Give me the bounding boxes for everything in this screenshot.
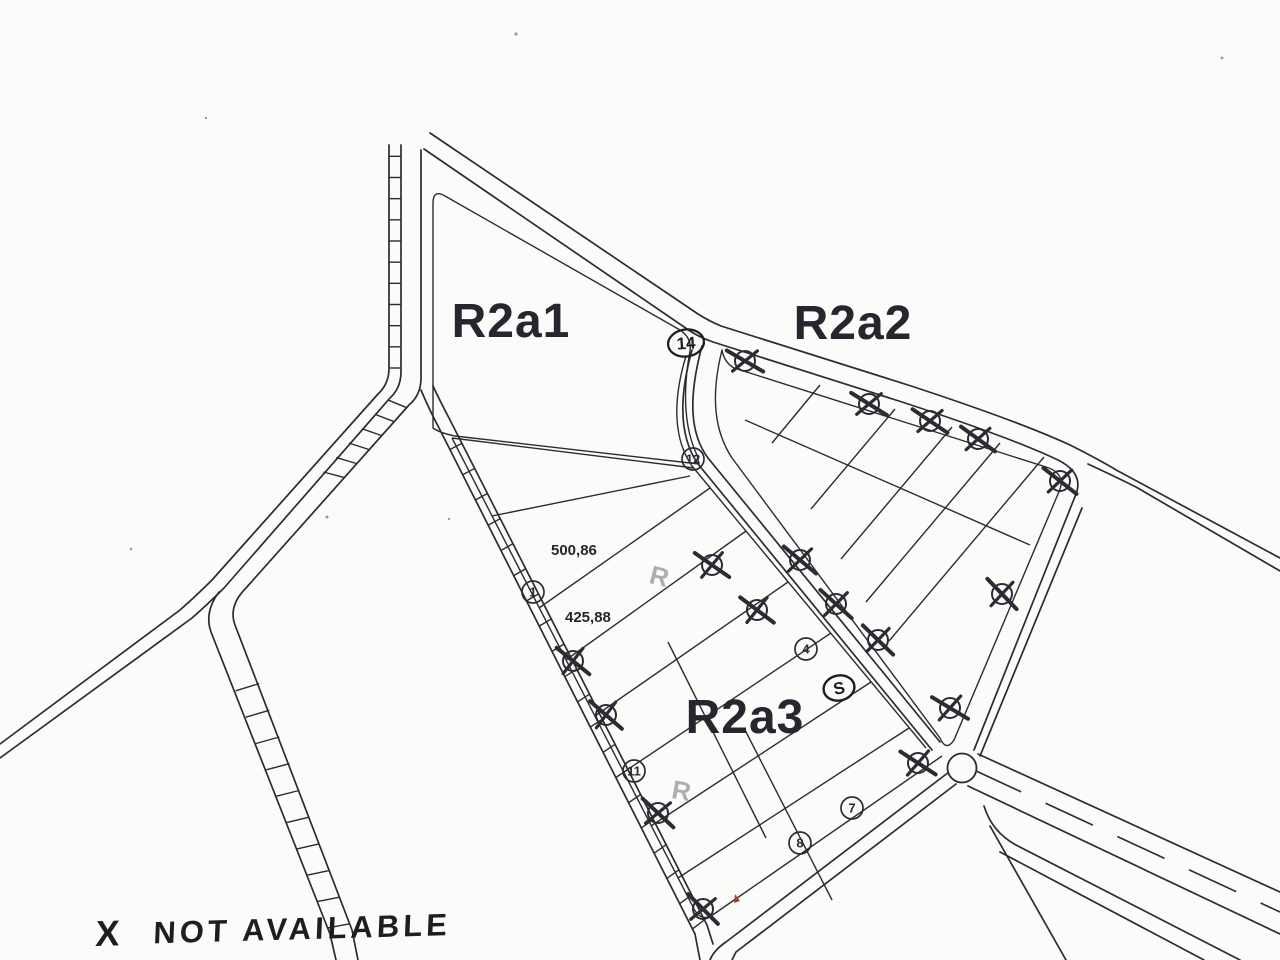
plot-marker-unavailable <box>913 409 948 432</box>
cross-stroke <box>939 696 960 720</box>
cross-stroke <box>908 751 929 775</box>
r2a2-column-line <box>841 427 952 559</box>
west-road-edge-2 <box>0 145 401 758</box>
plot-number-text: 12 <box>686 452 700 467</box>
ladder-rung <box>277 790 300 796</box>
corner-plot-boundary-3 <box>1000 852 1204 960</box>
cross-stroke <box>747 598 767 623</box>
ladder-rung <box>266 764 289 770</box>
plot-marker-unavailable <box>932 696 968 720</box>
cross-stroke <box>702 553 723 578</box>
middle-road-east-edge <box>433 386 713 944</box>
plot-number-text: 4 <box>802 642 810 657</box>
central-road-east-edge <box>693 346 940 742</box>
zone-label-r2a1: R2a1 <box>452 295 571 348</box>
west-road-edge-1 <box>0 145 389 744</box>
r2a2-column-line <box>889 457 1044 641</box>
scan-specks <box>130 32 1224 550</box>
plot-number-text: 8 <box>796 836 803 851</box>
plot-markers: 12141178 <box>522 351 1077 924</box>
legend-text: NOT AVAILABLE <box>153 907 452 950</box>
southeast-exit-road-north-edge <box>978 754 1280 892</box>
handwritten-letter-s: S <box>821 673 857 704</box>
plot-marker-unavailable <box>987 579 1016 609</box>
plot-number-text: 1 <box>529 585 536 600</box>
r2a2-column-line <box>772 385 820 443</box>
legend-x-symbol: X <box>95 912 121 954</box>
plot-marker-unavailable <box>740 597 774 622</box>
scanned-plan-page: 12141178 R2a1 R2a2 R2a3 500,86 425,88 14… <box>0 0 1280 960</box>
r2a2-column-line <box>811 409 895 509</box>
roundabout <box>948 754 977 783</box>
road-centre-dashed-line <box>974 770 1280 912</box>
r2a3-strip-line <box>492 476 690 516</box>
ladder-rung <box>362 429 382 436</box>
east-exit-road-edge <box>1088 464 1280 571</box>
ladder-rung <box>692 920 704 929</box>
zone-label-r2a2: R2a2 <box>794 297 913 350</box>
ladder-rung <box>287 817 310 822</box>
corner-plot-boundary-2 <box>990 826 1066 960</box>
plot-number-text: 7 <box>848 801 855 816</box>
ladder-rung <box>336 458 357 464</box>
plot-marker-available: 11 <box>623 760 645 782</box>
plot-marker-available: 4 <box>795 638 817 660</box>
middle-road-west-edge <box>421 390 700 960</box>
ladder-rung <box>375 414 394 421</box>
road-network <box>0 133 1280 960</box>
ladder-rung <box>256 737 279 744</box>
ladder-rung <box>349 443 369 450</box>
measurement-lower: 425,88 <box>565 609 611 626</box>
plot-marker-available: 7 <box>841 797 863 819</box>
plot-marker-available: 8 <box>789 832 811 854</box>
ladder-rung <box>297 844 320 849</box>
zone-label-r2a3: R2a3 <box>686 691 805 744</box>
ladder-rung <box>323 472 344 478</box>
r2a3-spine-line <box>744 728 832 900</box>
red-scan-mark <box>734 894 740 903</box>
ladder-rung <box>236 684 260 691</box>
plot-marker-available: 1 <box>522 581 544 603</box>
measurement-upper: 500,86 <box>551 542 597 559</box>
plot-marker-unavailable <box>900 751 935 775</box>
ladder-rung <box>317 897 339 901</box>
zone-r2a3-top-edge <box>452 438 694 468</box>
pencil-mark-r-upper: R <box>647 559 673 593</box>
ladder-rung <box>388 400 407 408</box>
southwest-exit-road-edge-2 <box>732 784 956 960</box>
southeast-road-mid-line <box>980 508 1082 756</box>
ladder-rung <box>246 710 269 717</box>
plot-marker-unavailable <box>863 625 893 654</box>
southwest-branch-edge <box>209 592 336 960</box>
plot-marker-unavailable <box>961 427 995 452</box>
southwest-exit-road-edge-1 <box>710 772 949 960</box>
plot-marker-unavailable <box>688 894 718 924</box>
pencil-mark-r-lower: R <box>670 774 694 807</box>
legend-not-available: X NOT AVAILABLE <box>95 903 452 954</box>
plot-marker-unavailable <box>784 547 816 574</box>
plot-marker-unavailable <box>820 590 851 618</box>
ladder-rung <box>307 870 329 875</box>
site-plan-svg: 12141178 R2a1 R2a2 R2a3 500,86 425,88 14… <box>0 0 1280 960</box>
handwritten-plot-14-number: 14 <box>676 333 697 353</box>
west-road-edge-3 <box>233 150 421 960</box>
plot-marker-unavailable <box>695 553 729 578</box>
plot-number-text: 11 <box>627 764 641 779</box>
handwritten-letter-s-char: S <box>832 678 847 699</box>
plot-marker-unavailable <box>727 351 763 372</box>
plot-marker-unavailable <box>1043 468 1076 494</box>
